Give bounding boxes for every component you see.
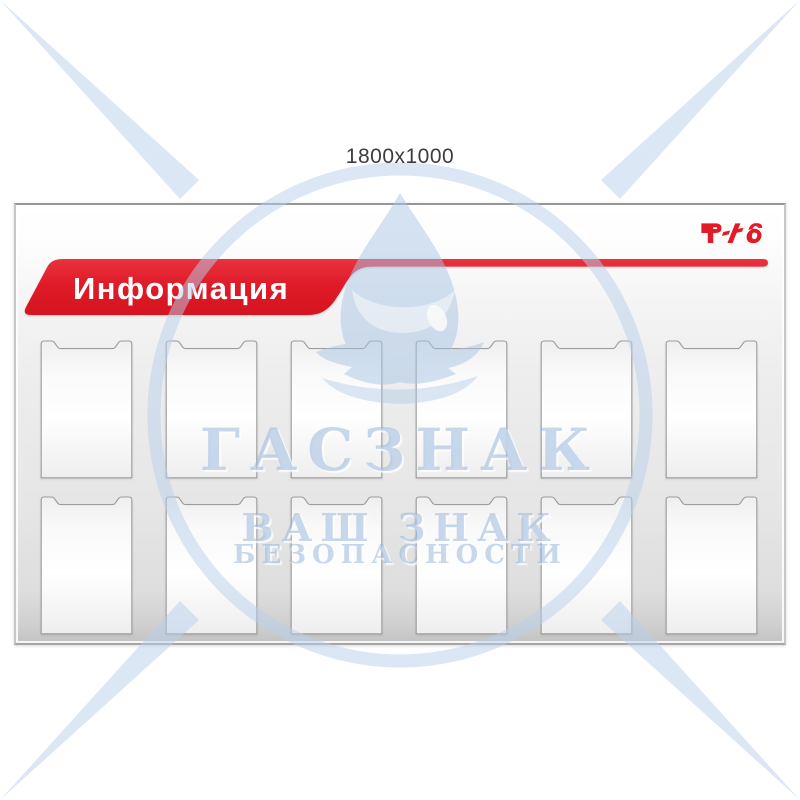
pocket [288, 339, 385, 479]
pocket [413, 495, 510, 635]
pocket [538, 339, 635, 479]
pocket [663, 495, 760, 635]
size-label: 1800x1000 [0, 145, 800, 169]
pocket-row-1 [38, 339, 760, 479]
pocket [163, 495, 260, 635]
pocket [413, 339, 510, 479]
pocket [663, 339, 760, 479]
needle-top-right-icon [601, 0, 800, 199]
needle-top-left-icon [0, 0, 199, 199]
board-title: Информация [73, 272, 289, 306]
pocket [163, 339, 260, 479]
rzd-logo-icon [700, 218, 764, 247]
info-board: Информация [14, 203, 786, 645]
pocket [38, 495, 135, 635]
pocket [38, 339, 135, 479]
pocket-row-2 [38, 495, 760, 635]
pocket [538, 495, 635, 635]
pocket [288, 495, 385, 635]
